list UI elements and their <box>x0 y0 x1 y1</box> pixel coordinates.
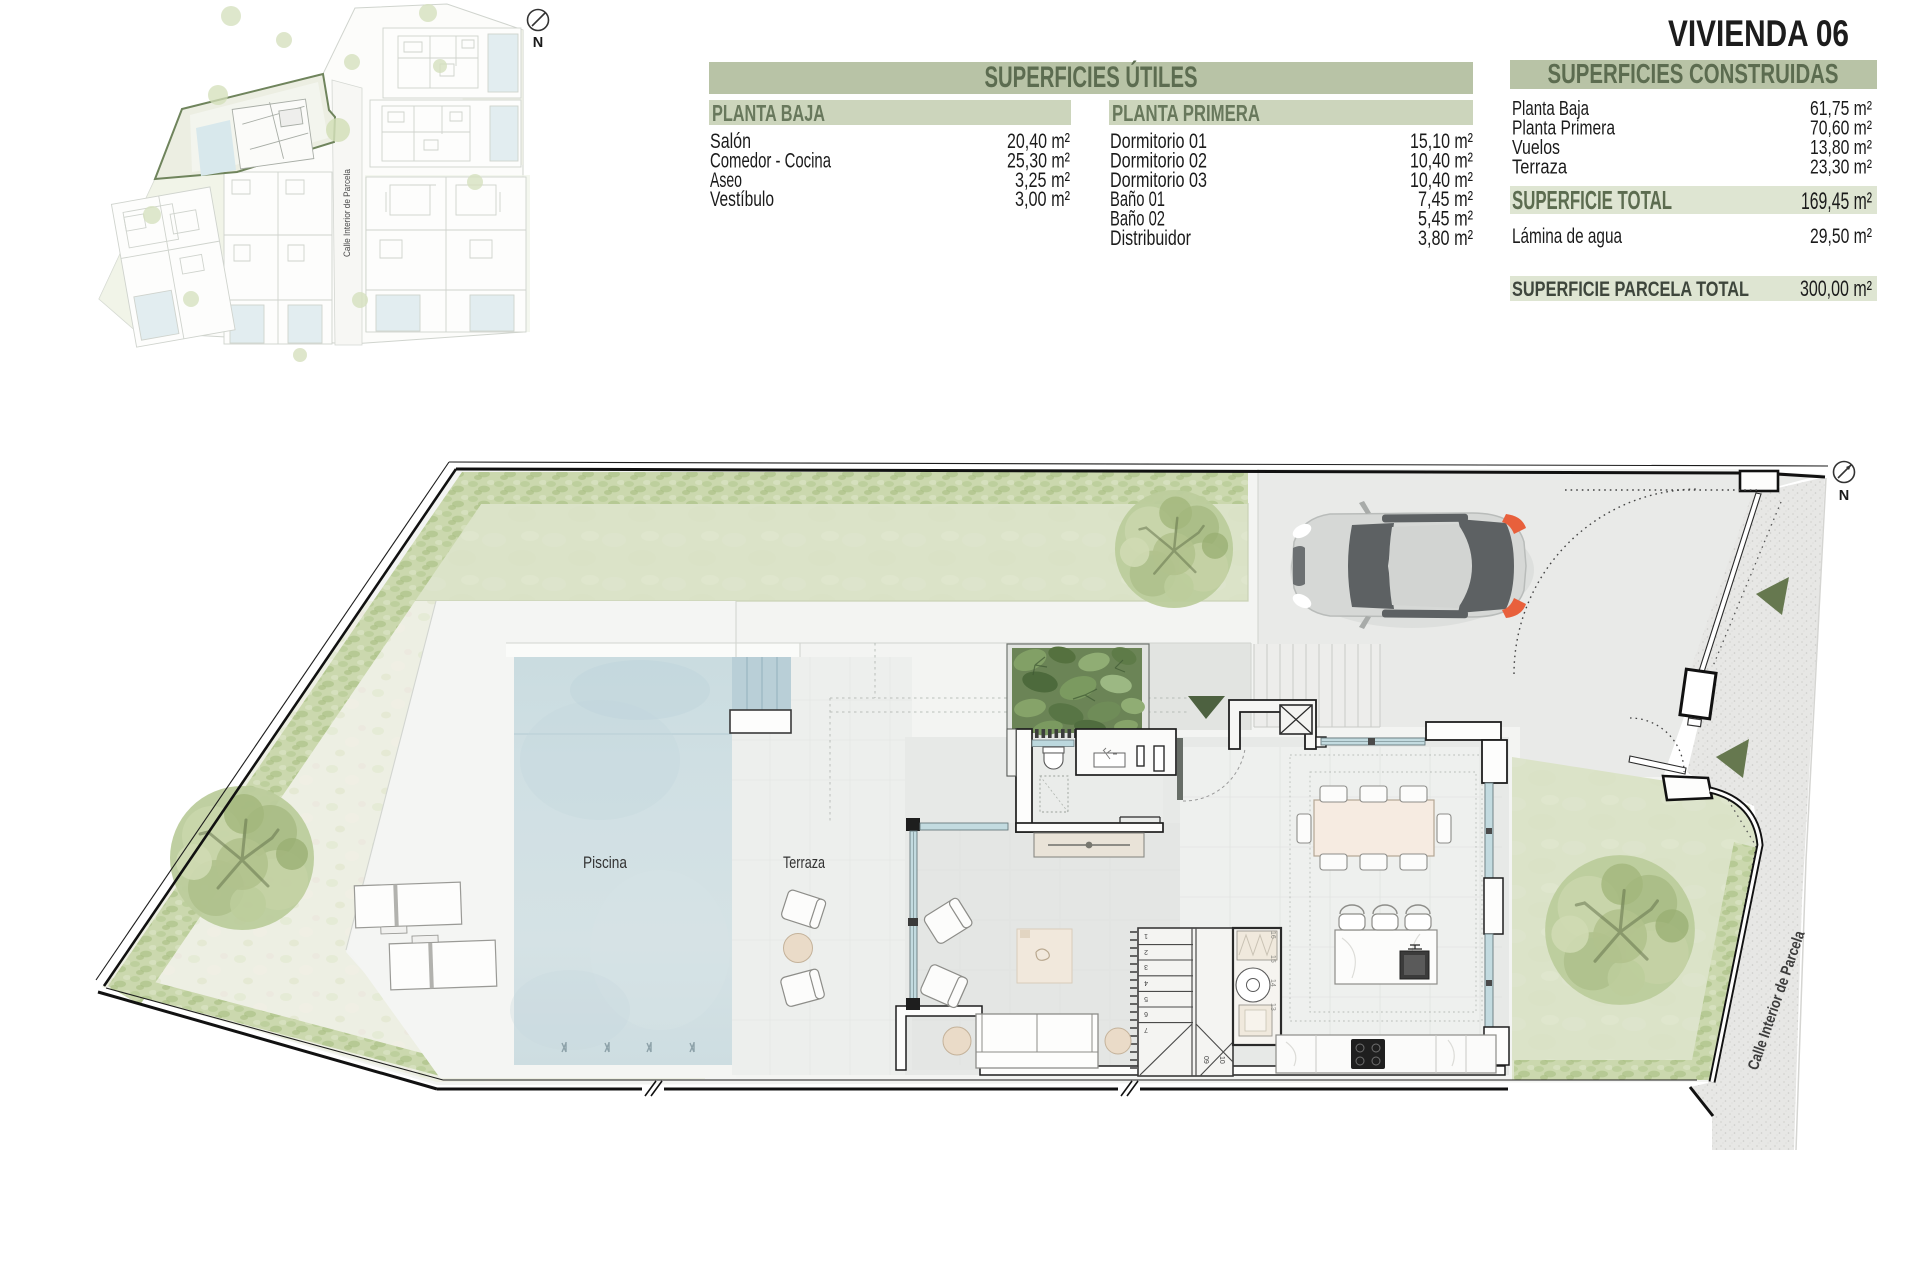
svg-text:SUPERFICIES ÚTILES: SUPERFICIES ÚTILES <box>985 60 1198 94</box>
svg-text:10: 10 <box>1218 1056 1225 1064</box>
svg-text:09: 09 <box>1202 1056 1209 1064</box>
svg-text:3,80 m²: 3,80 m² <box>1418 227 1473 250</box>
svg-text:300,00 m²: 300,00 m² <box>1800 276 1872 301</box>
svg-text:2: 2 <box>1144 948 1148 955</box>
svg-text:13: 13 <box>1269 1003 1276 1011</box>
svg-text:SUPERFICIE TOTAL: SUPERFICIE TOTAL <box>1512 185 1672 215</box>
svg-text:N: N <box>1839 488 1849 504</box>
svg-text:15: 15 <box>1269 955 1276 963</box>
svg-text:23,30 m²: 23,30 m² <box>1810 157 1872 179</box>
svg-text:Calle Interior de Parcela: Calle Interior de Parcela <box>342 169 352 257</box>
svg-text:4: 4 <box>1144 979 1148 986</box>
svg-text:5: 5 <box>1144 995 1148 1002</box>
svg-text:Vestíbulo: Vestíbulo <box>710 188 774 211</box>
svg-text:3: 3 <box>1144 963 1148 970</box>
svg-text:PLANTA BAJA: PLANTA BAJA <box>712 100 825 126</box>
svg-text:16: 16 <box>1269 931 1276 939</box>
svg-text:SUPERFICIE PARCELA TOTAL: SUPERFICIE PARCELA TOTAL <box>1512 278 1749 301</box>
svg-text:SUPERFICIES CONSTRUIDAS: SUPERFICIES CONSTRUIDAS <box>1548 58 1839 89</box>
svg-text:6: 6 <box>1144 1010 1148 1017</box>
svg-text:14: 14 <box>1269 979 1276 987</box>
svg-text:Terraza: Terraza <box>1512 157 1568 179</box>
svg-text:Piscina: Piscina <box>583 853 627 872</box>
svg-text:1: 1 <box>1144 932 1148 939</box>
svg-text:VIVIENDA 06: VIVIENDA 06 <box>1668 13 1849 54</box>
svg-text:PLANTA PRIMERA: PLANTA PRIMERA <box>1112 100 1260 126</box>
svg-text:Terraza: Terraza <box>783 853 825 872</box>
svg-text:29,50 m²: 29,50 m² <box>1810 225 1872 248</box>
svg-text:Lámina de agua: Lámina de agua <box>1512 225 1622 248</box>
svg-text:169,45 m²: 169,45 m² <box>1801 188 1872 215</box>
svg-text:7: 7 <box>1144 1026 1148 1033</box>
svg-text:3,00 m²: 3,00 m² <box>1015 188 1070 211</box>
svg-text:N: N <box>533 35 543 51</box>
svg-text:Distribuidor: Distribuidor <box>1110 227 1191 250</box>
